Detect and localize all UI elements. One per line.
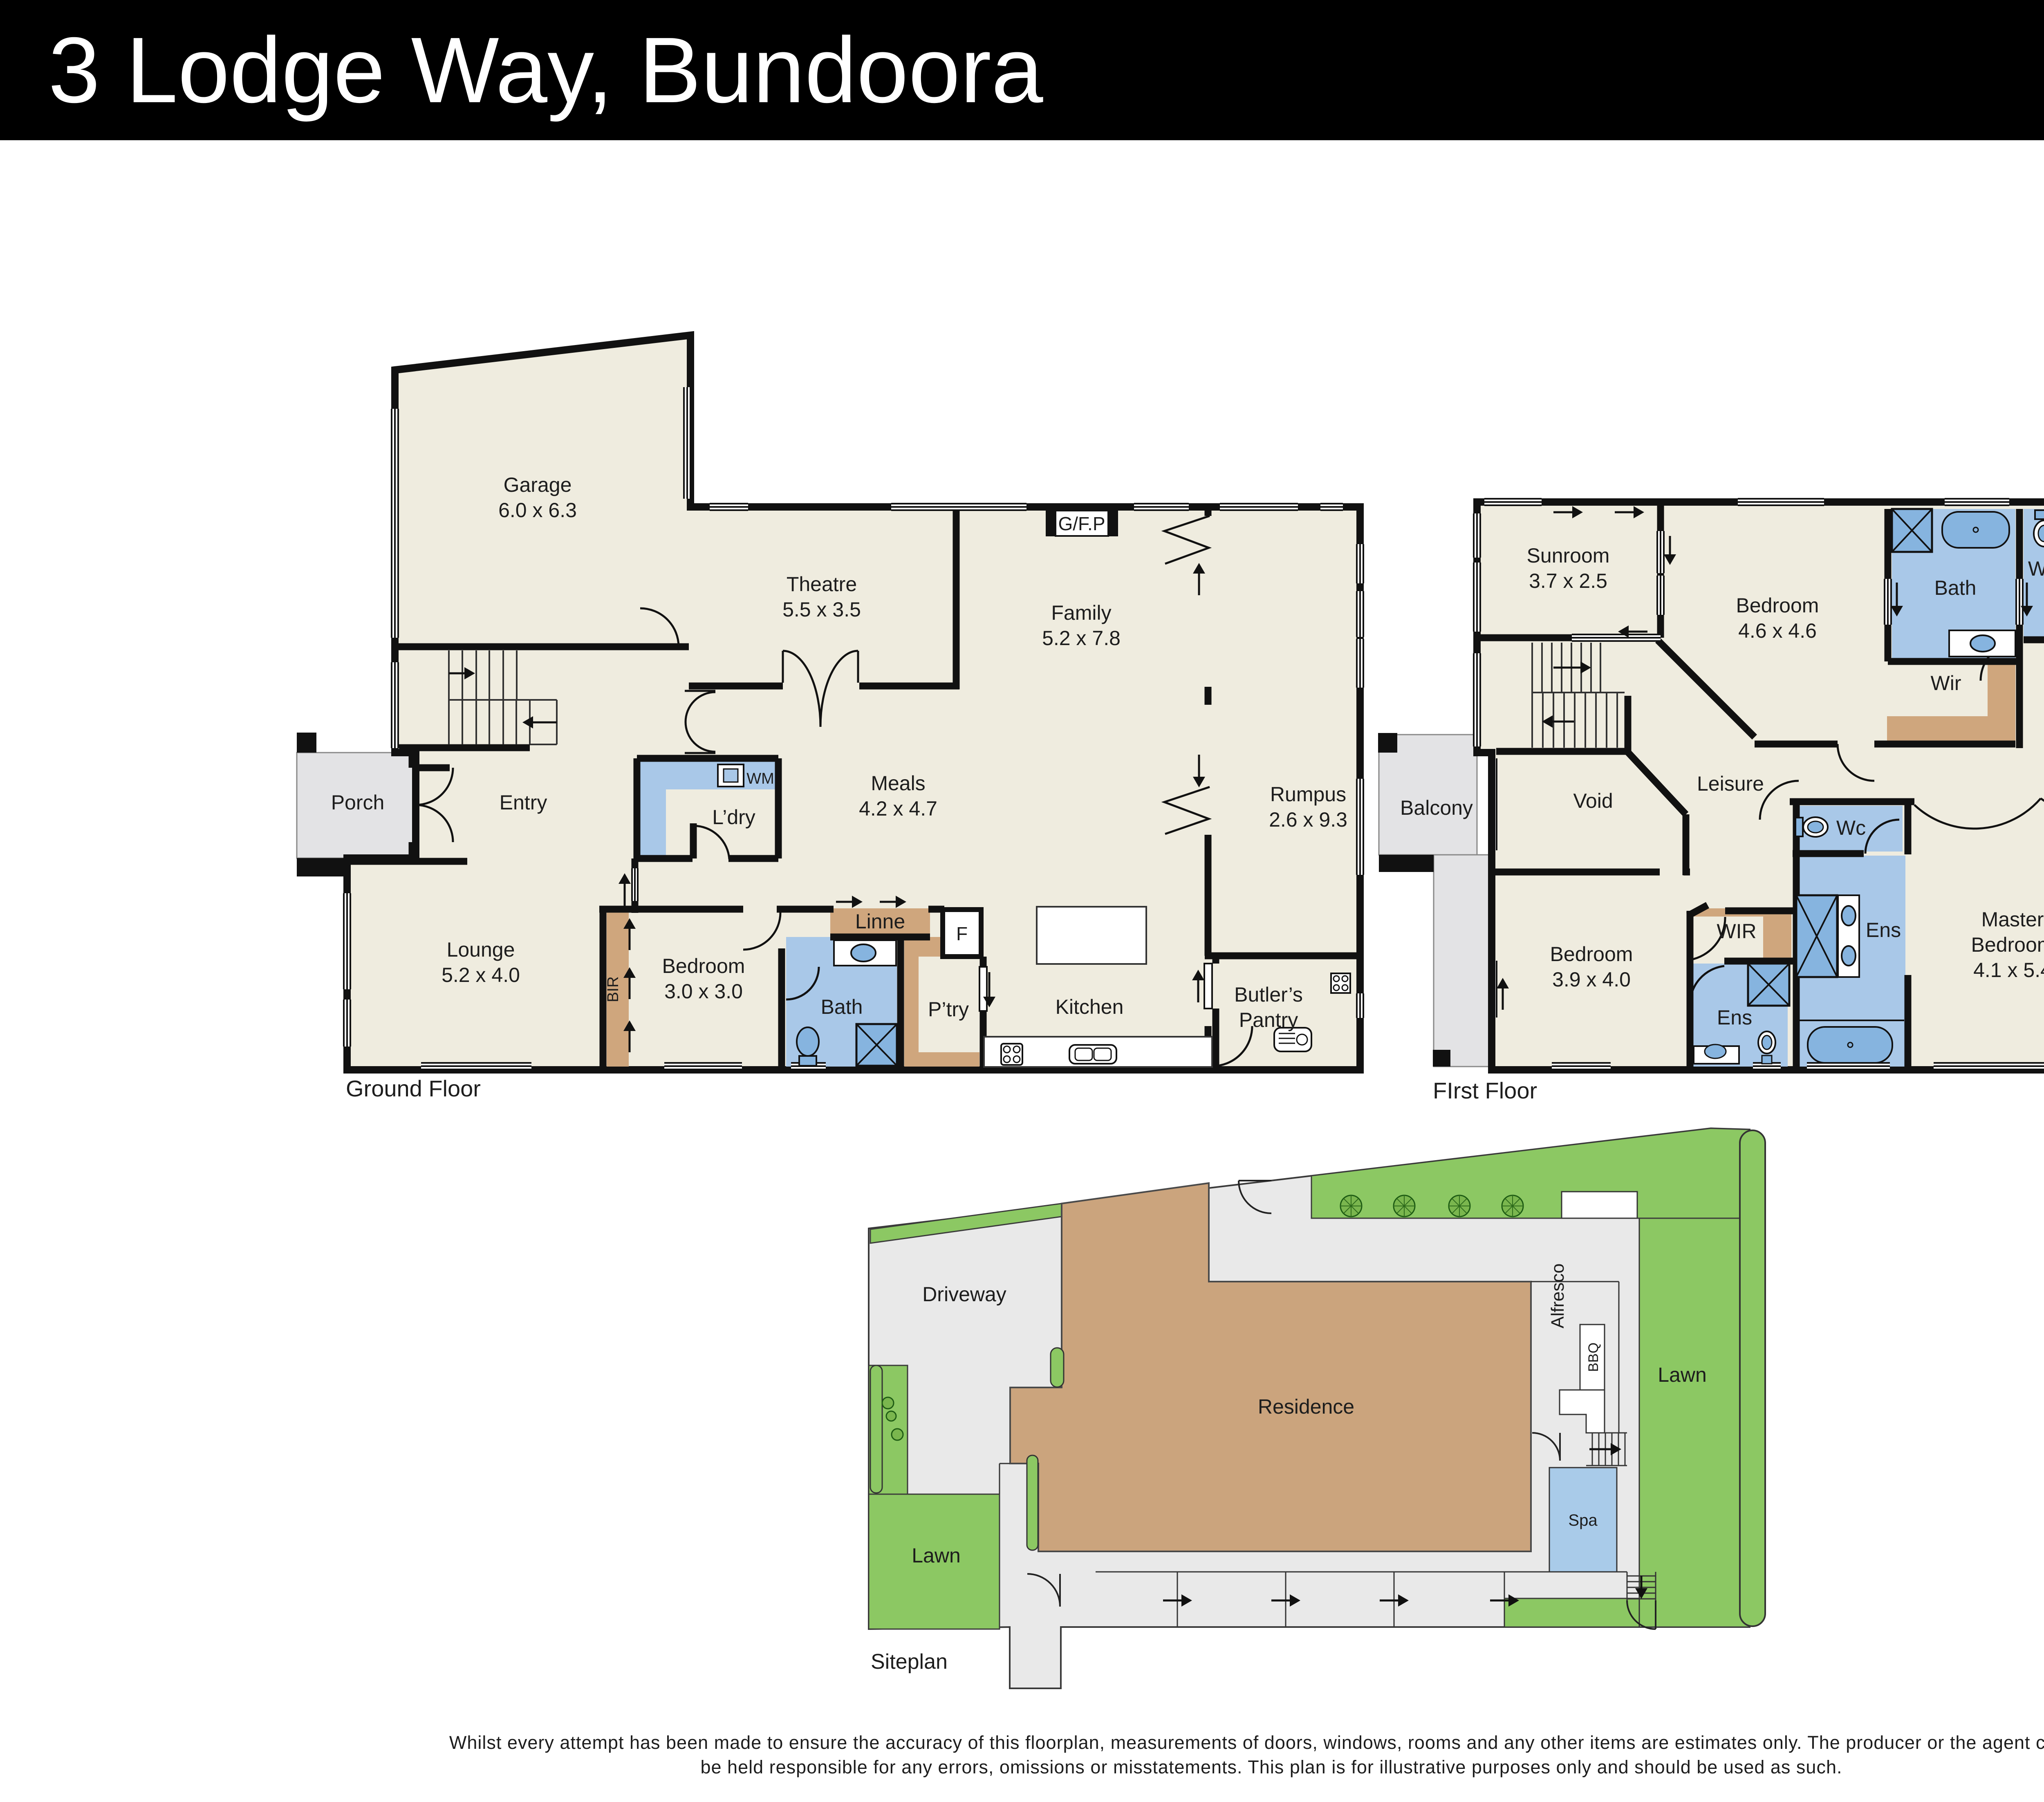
svg-text:Wir: Wir bbox=[1931, 672, 1961, 695]
svg-text:Siteplan: Siteplan bbox=[871, 1650, 948, 1674]
svg-text:2.6 x 9.3: 2.6 x 9.3 bbox=[1269, 808, 1347, 831]
svg-text:3.0 x 3.0: 3.0 x 3.0 bbox=[664, 980, 743, 1003]
svg-text:P’try: P’try bbox=[928, 998, 969, 1021]
svg-text:Theatre: Theatre bbox=[787, 573, 857, 596]
svg-text:Ens: Ens bbox=[1866, 919, 1901, 941]
svg-text:5.5 x 3.5: 5.5 x 3.5 bbox=[782, 598, 861, 621]
svg-text:5.2 x 7.8: 5.2 x 7.8 bbox=[1042, 627, 1121, 650]
svg-text:BIR: BIR bbox=[605, 976, 622, 1002]
svg-text:3.7 x 2.5: 3.7 x 2.5 bbox=[1529, 569, 1607, 592]
svg-text:WIR: WIR bbox=[1717, 920, 1756, 943]
svg-text:Pantry: Pantry bbox=[1239, 1009, 1298, 1031]
svg-text:Bath: Bath bbox=[821, 995, 863, 1018]
svg-text:Master: Master bbox=[1981, 908, 2044, 931]
svg-text:4.1 x 5.4: 4.1 x 5.4 bbox=[1973, 959, 2044, 982]
svg-text:FIrst Floor: FIrst Floor bbox=[1433, 1078, 1537, 1103]
svg-text:Ground Floor: Ground Floor bbox=[346, 1076, 481, 1101]
svg-text:BBQ: BBQ bbox=[1586, 1343, 1601, 1372]
svg-text:3.9 x 4.0: 3.9 x 4.0 bbox=[1552, 968, 1631, 991]
svg-text:Butler’s: Butler’s bbox=[1234, 983, 1303, 1006]
svg-text:Wc: Wc bbox=[1836, 816, 1866, 839]
svg-text:Porch: Porch bbox=[331, 791, 385, 814]
svg-text:Void: Void bbox=[1573, 789, 1613, 812]
svg-text:Bedroom: Bedroom bbox=[1550, 943, 1633, 966]
svg-text:G/F.P: G/F.P bbox=[1058, 513, 1105, 534]
svg-text:5.2 x 4.0: 5.2 x 4.0 bbox=[442, 964, 520, 986]
svg-text:6.0 x 6.3: 6.0 x 6.3 bbox=[498, 499, 577, 522]
svg-text:Garage: Garage bbox=[504, 473, 572, 496]
svg-text:F: F bbox=[956, 923, 968, 944]
svg-text:be held responsible for any er: be held responsible for any errors, omis… bbox=[701, 1757, 1842, 1777]
svg-text:Alfresco: Alfresco bbox=[1548, 1264, 1568, 1329]
svg-text:3 Lodge Way, Bundoora: 3 Lodge Way, Bundoora bbox=[48, 18, 1043, 122]
svg-text:Rumpus: Rumpus bbox=[1270, 783, 1346, 806]
svg-text:4.6 x 4.6: 4.6 x 4.6 bbox=[1738, 619, 1817, 642]
svg-text:Residence: Residence bbox=[1258, 1395, 1354, 1418]
svg-text:Wc: Wc bbox=[2028, 557, 2044, 580]
svg-text:Lawn: Lawn bbox=[1658, 1363, 1707, 1386]
svg-text:Sunroom: Sunroom bbox=[1527, 544, 1610, 567]
svg-text:Kitchen: Kitchen bbox=[1056, 995, 1124, 1018]
svg-text:Family: Family bbox=[1051, 601, 1111, 624]
svg-text:4.2 x 4.7: 4.2 x 4.7 bbox=[859, 797, 937, 820]
svg-text:Balcony: Balcony bbox=[1400, 796, 1473, 819]
svg-text:Whilst every attempt has been: Whilst every attempt has been made to en… bbox=[449, 1732, 2044, 1753]
svg-text:Linne: Linne bbox=[855, 910, 905, 933]
svg-text:Leisure: Leisure bbox=[1697, 772, 1764, 795]
svg-text:L’dry: L’dry bbox=[712, 806, 755, 829]
svg-text:Bedroom: Bedroom bbox=[662, 955, 745, 977]
svg-text:Entry: Entry bbox=[500, 791, 547, 814]
svg-text:WM: WM bbox=[746, 770, 774, 787]
svg-text:Meals: Meals bbox=[871, 772, 925, 795]
svg-text:Driveway: Driveway bbox=[922, 1283, 1006, 1306]
svg-text:Lounge: Lounge bbox=[447, 938, 515, 961]
svg-text:Spa: Spa bbox=[1568, 1511, 1598, 1529]
svg-text:Lawn: Lawn bbox=[912, 1544, 961, 1567]
svg-text:Bath: Bath bbox=[1934, 576, 1977, 599]
svg-text:Bedroom: Bedroom bbox=[1971, 933, 2044, 956]
svg-text:Ens: Ens bbox=[1717, 1006, 1752, 1029]
svg-text:Bedroom: Bedroom bbox=[1736, 594, 1819, 617]
